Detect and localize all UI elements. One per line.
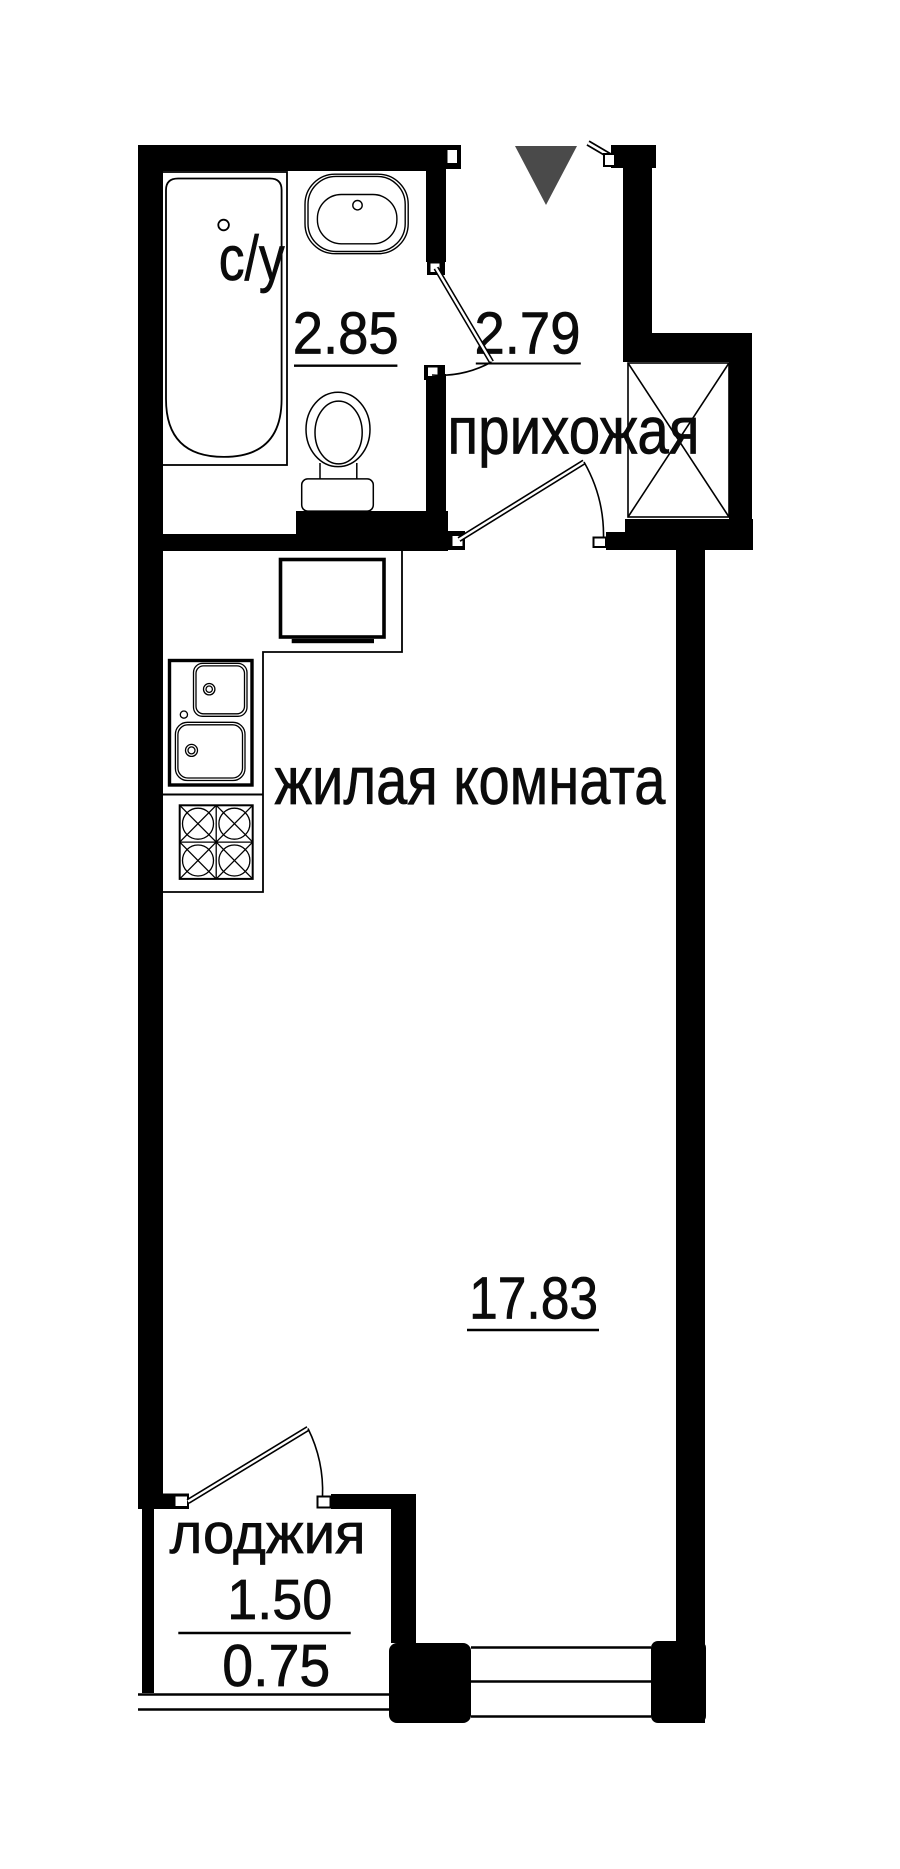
svg-text:лоджия: лоджия: [170, 1502, 366, 1565]
svg-text:прихожая: прихожая: [448, 395, 700, 469]
svg-text:17.83: 17.83: [469, 1266, 598, 1332]
svg-text:0.75: 0.75: [222, 1633, 330, 1699]
svg-text:с/у: с/у: [219, 224, 285, 294]
svg-text:жилая комната: жилая комната: [275, 743, 666, 819]
svg-text:2.85: 2.85: [293, 301, 399, 367]
svg-text:1.50: 1.50: [227, 1568, 332, 1632]
